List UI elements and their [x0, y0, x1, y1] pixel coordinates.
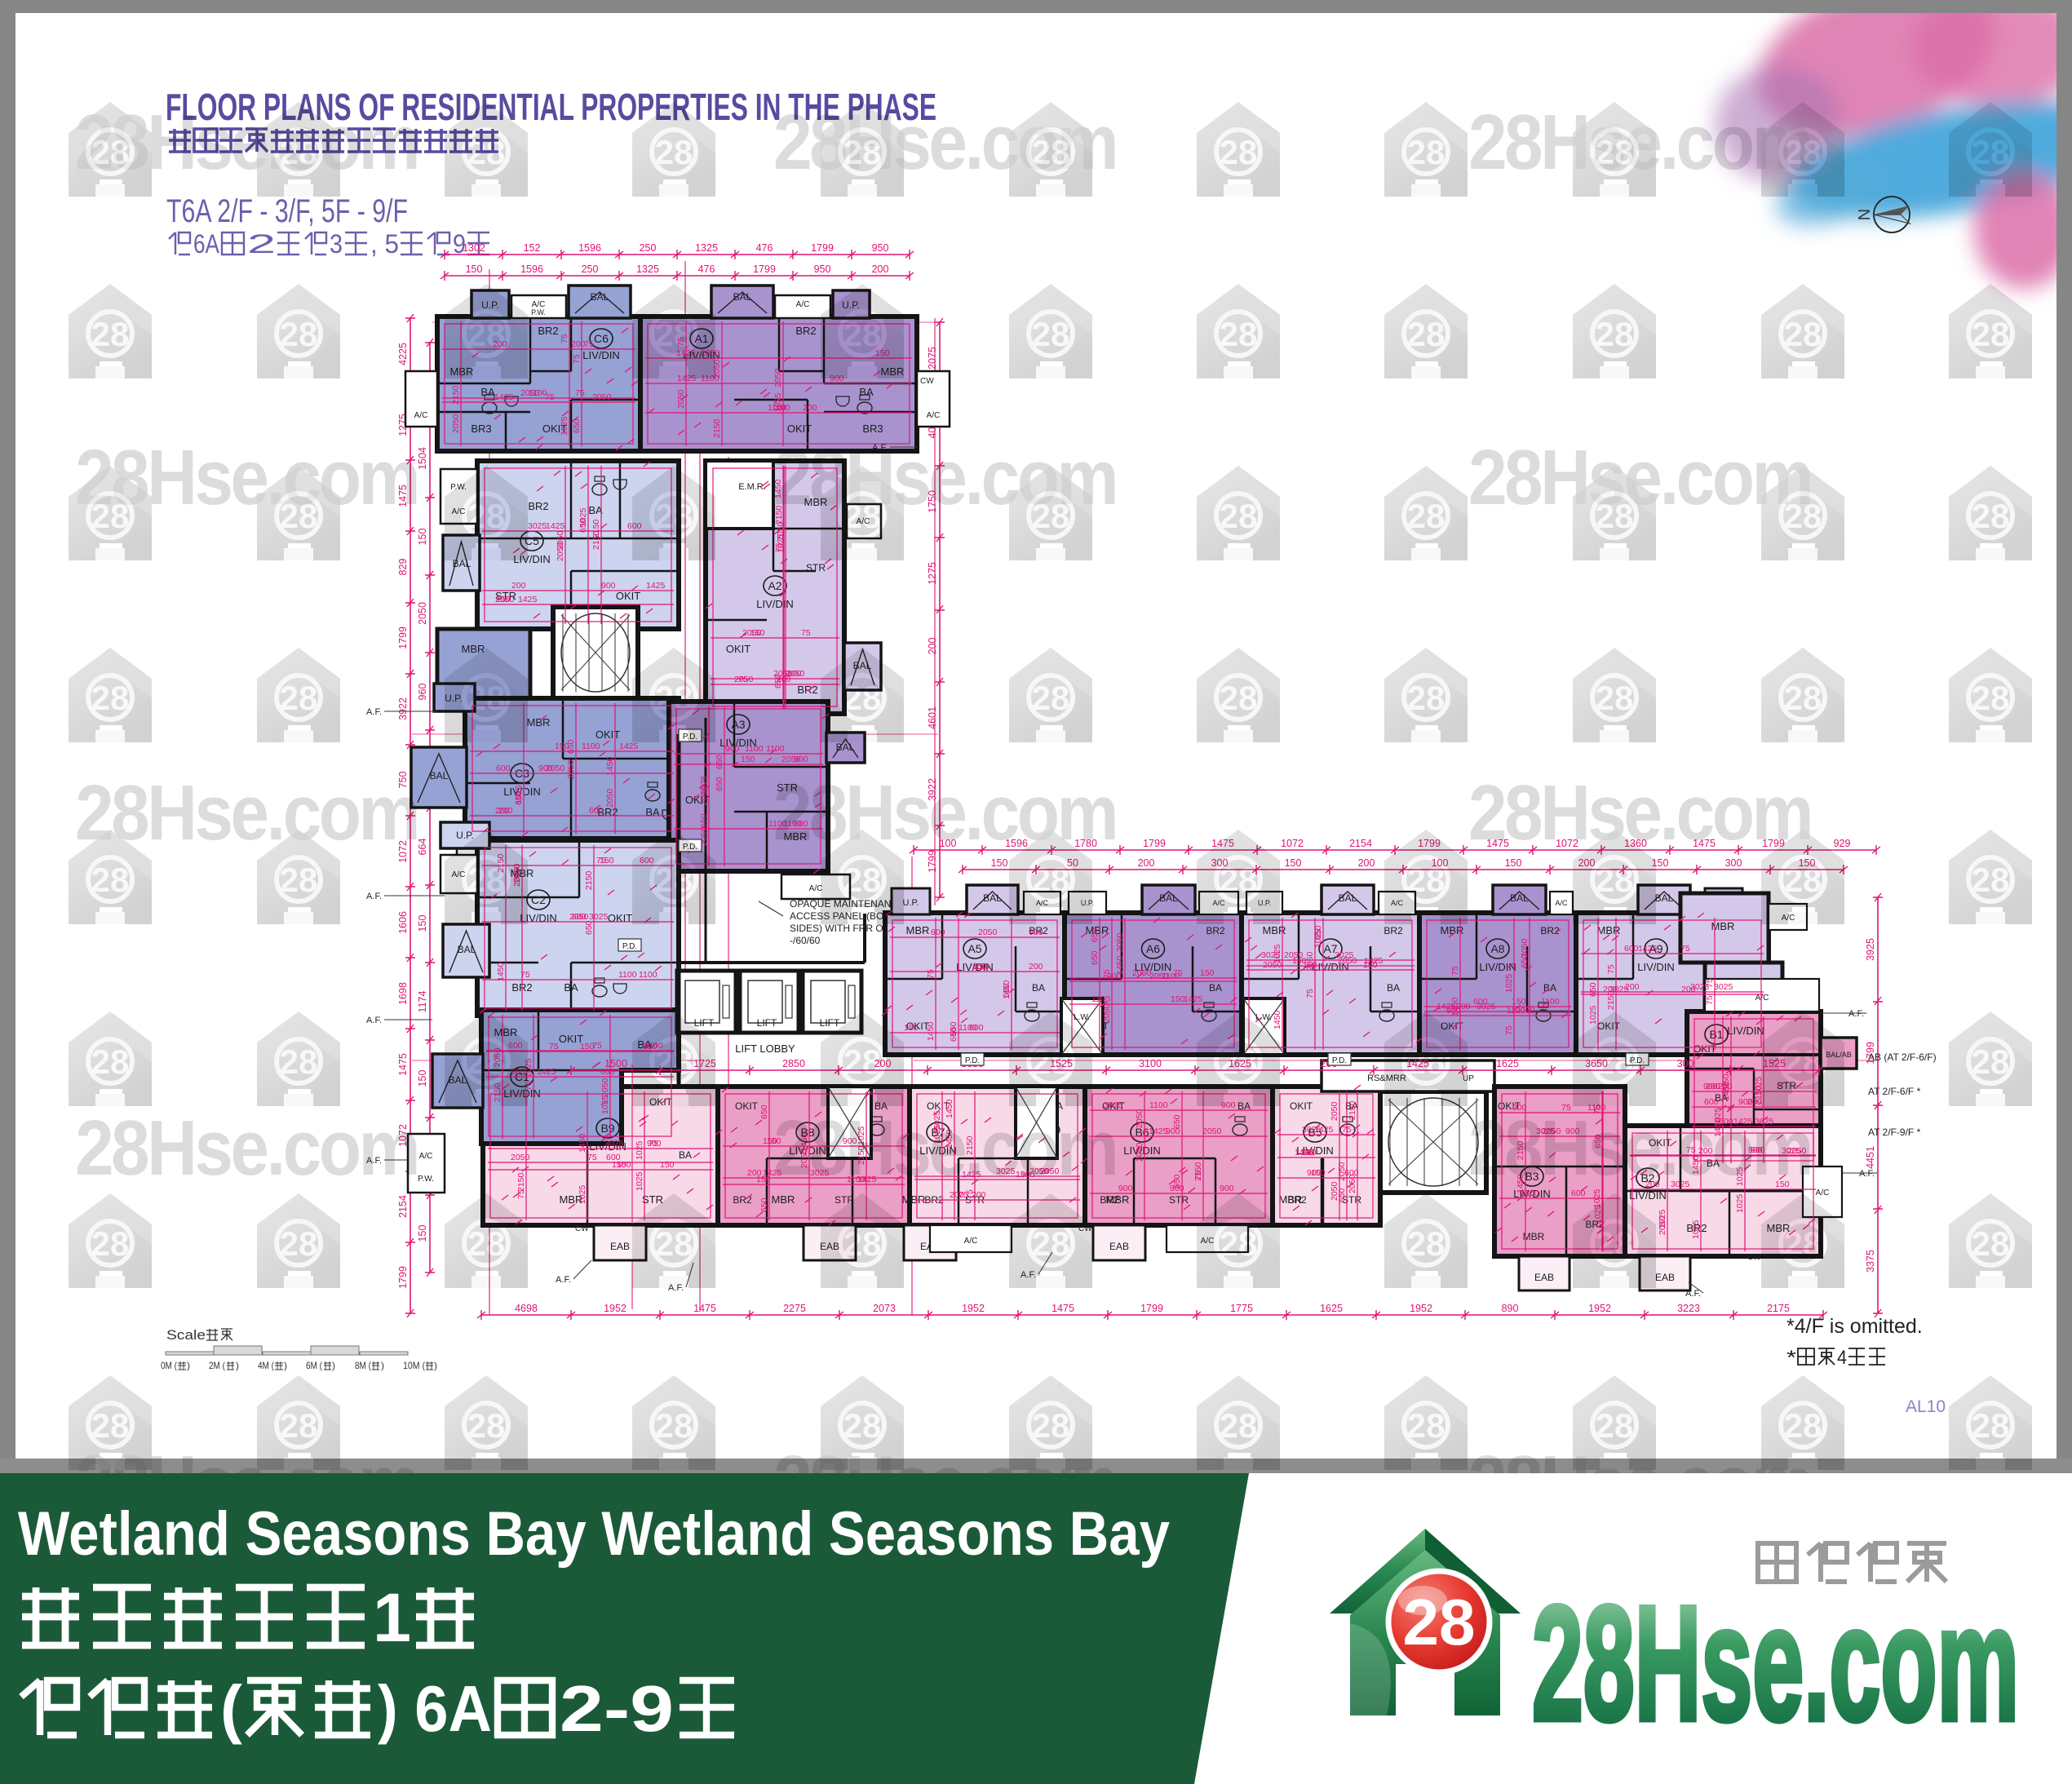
svg-text:2-9: 2-9: [560, 1672, 674, 1745]
svg-text:(: (: [220, 1672, 242, 1745]
svg-text:28: 28: [1403, 1586, 1476, 1658]
svg-text:28Hse.com: 28Hse.com: [1532, 1573, 2019, 1755]
svg-text:) 6A: ) 6A: [378, 1672, 492, 1745]
svg-text:Wetland Seasons Bay Wetland Se: Wetland Seasons Bay Wetland Seasons Bay: [18, 1499, 1170, 1569]
svg-text:1: 1: [373, 1579, 411, 1656]
